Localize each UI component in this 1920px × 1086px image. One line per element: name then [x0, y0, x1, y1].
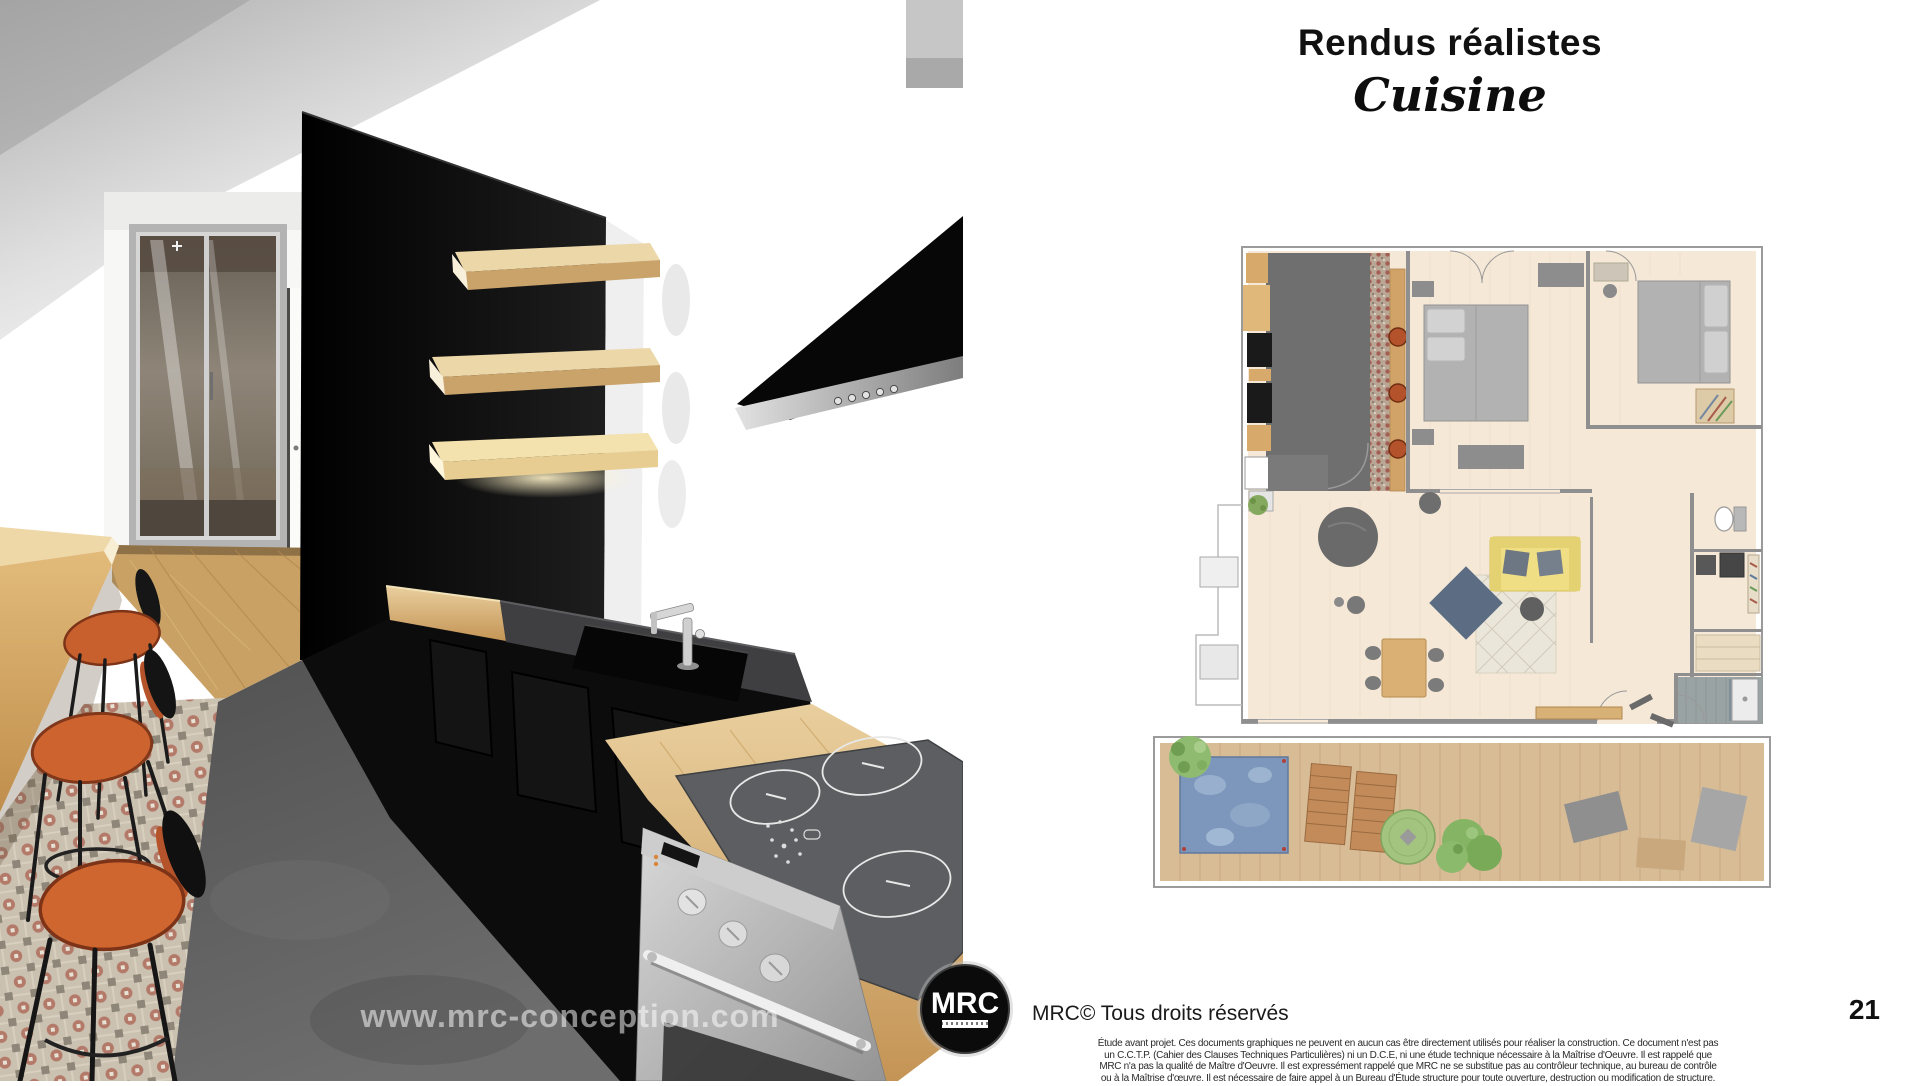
terrace-plant: [1169, 736, 1211, 778]
watermark-url: www.mrc-conception.com: [285, 998, 855, 1035]
mrc-logo: MRC: [920, 964, 1010, 1054]
document-page: { "page": { "title": "Rendus réalistes",…: [0, 0, 1920, 1081]
disclaimer-line: Étude avant projet. Ces documents graphi…: [1058, 1038, 1758, 1050]
page-number: 21: [1790, 994, 1880, 1026]
terrace-mat-3: [1636, 837, 1686, 870]
floor-plan-svg: [1140, 205, 1800, 895]
sliding-glass-door: [129, 224, 287, 548]
copyright-text: MRC© Tous droits réservés: [1032, 1002, 1289, 1026]
sideboard: [1536, 707, 1622, 719]
page-subtitle: Cuisine: [1100, 68, 1800, 122]
round-tree: [1381, 810, 1435, 864]
plan-wc: [1715, 507, 1746, 531]
sofa: [1490, 537, 1580, 591]
mrc-logo-text: MRC: [931, 990, 999, 1018]
disclaimer-line: ou à la Maîtrise d'œuvre. Il est nécessa…: [1058, 1073, 1758, 1085]
page-title: Rendus réalistes: [1100, 22, 1800, 64]
disclaimer-line: MRC n'a pas la qualité de Maître d'Oeuvr…: [1058, 1061, 1758, 1073]
plan-closet: [1696, 635, 1760, 671]
plan-terrace: [1160, 736, 1764, 881]
disclaimer-paragraph: Étude avant projet. Ces documents graphi…: [1058, 1038, 1758, 1084]
plan-bathroom: [1678, 677, 1762, 723]
kitchen-render-photo: [0, 0, 963, 1081]
floor-plan: [1140, 205, 1800, 895]
mrc-logo-band: [942, 1020, 988, 1028]
kitchen-render-svg: [0, 0, 963, 1081]
disclaimer-line: un C.C.T.P. (Cahier des Clauses Techniqu…: [1058, 1050, 1758, 1062]
plan-kitchen: [1243, 253, 1407, 511]
